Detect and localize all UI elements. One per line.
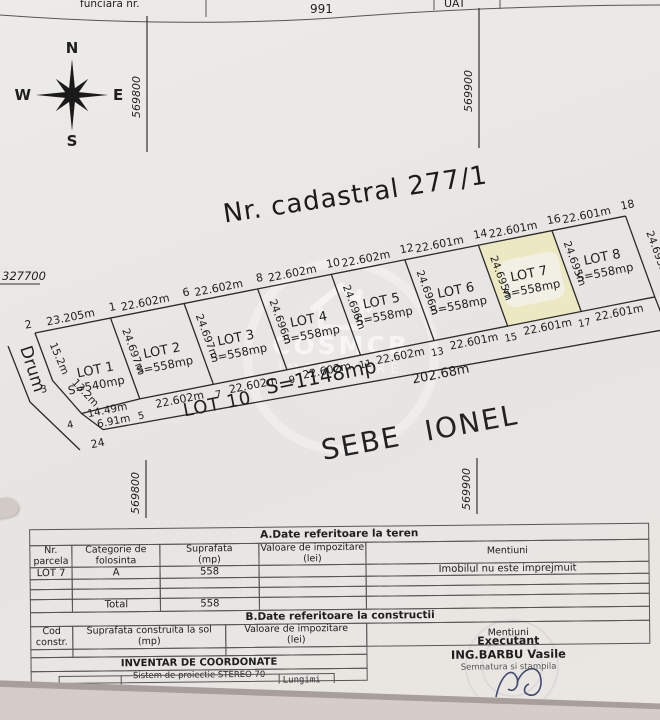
grid-label-569800-top: 569800: [130, 76, 143, 118]
point-18: 18: [619, 197, 635, 212]
dim-top-3: 22.602m: [267, 262, 318, 284]
dim-top-5: 22.601m: [414, 233, 465, 255]
compass-rose: N S W E: [14, 39, 123, 150]
dim-top-0: 23.205m: [45, 306, 96, 328]
point-1: 1: [108, 300, 117, 314]
point-12: 12: [399, 241, 415, 256]
dim-bottom-3: 22.602m: [375, 345, 426, 367]
point-14: 14: [472, 226, 488, 241]
table-a-header-categorie: Categorie de folosinta: [71, 544, 160, 568]
top-fragment-number: 991: [310, 2, 333, 16]
compass-e: E: [113, 86, 123, 104]
compass-s: S: [67, 132, 78, 150]
executant-block: Executant ING.BARBU Vasile Semnatura si …: [366, 633, 650, 674]
coord-table-tick: [279, 674, 280, 684]
executant-title: Executant: [477, 634, 539, 648]
hdr-line: (lei): [303, 554, 322, 565]
table-b-header-valoare: Valoare de impozitare (lei): [225, 623, 367, 648]
point-10: 10: [325, 256, 341, 271]
hdr-line: parcela: [33, 556, 68, 567]
executant-name: ING.BARBU Vasile: [451, 647, 566, 662]
hdr-line: (lei): [287, 635, 306, 646]
dim-bottom-4: 22.601m: [449, 330, 500, 352]
grid-coord-327700: 327700: [2, 269, 46, 283]
executant-subtitle: Semnatura si stampila: [461, 662, 557, 673]
top-fragment-uat: UAT: [444, 0, 466, 10]
point-8: 8: [255, 271, 264, 285]
point-2: 2: [24, 318, 33, 332]
hdr-line: (mp): [138, 637, 161, 648]
hdr-line: constr.: [36, 638, 68, 649]
lungimi-label: Lungimi: [283, 675, 321, 685]
data-tables: A.Date referitoare la teren Nr. parcela …: [29, 523, 651, 699]
scanned-cadastral-document: COSMCB IMOBILIARE funciara nr. 991 UAT 5…: [0, 0, 660, 720]
compass-n: N: [66, 39, 79, 57]
hdr-line: (mp): [198, 555, 221, 566]
point-17: 17: [577, 317, 592, 330]
grid-label-569800-bottom: 569800: [129, 472, 142, 514]
dim-bottom-6: 22.601m: [594, 301, 645, 323]
coord-table-tick: [121, 675, 122, 685]
point-5: 5: [137, 410, 145, 422]
point-4: 4: [66, 419, 74, 431]
table-a-header-suprafata: Suprafata (mp): [159, 543, 259, 567]
road-edge-line: [8, 346, 80, 450]
dim-top-4: 22.602m: [340, 248, 391, 270]
point-6: 6: [181, 285, 190, 299]
point-24: 24: [90, 436, 106, 451]
lot-strip: 23.205m 22.602m 22.602m 22.602m 22.602m …: [23, 193, 660, 459]
dim-top-7: 22.601m: [561, 204, 612, 226]
table-b-header-suprafata: Suprafata construita la sol (mp): [72, 624, 226, 650]
grid-label-569900-top: 569900: [462, 70, 475, 112]
paper-sheet: COSMCB IMOBILIARE funciara nr. 991 UAT 5…: [0, 0, 660, 720]
point-15: 15: [504, 331, 519, 344]
table-a-header-valoare: Valoare de impozitare (lei): [258, 542, 366, 566]
hdr-line: folosinta: [96, 556, 137, 567]
dim-left-0: 15.2m: [47, 341, 71, 377]
top-fragment-text: funciara nr.: [80, 0, 140, 10]
lot10-front-length: 202.68m: [411, 361, 471, 387]
dim-top-2: 22.602m: [193, 277, 244, 299]
coord-table-tick: [334, 673, 335, 683]
table-a-header-parcela: Nr. parcela: [29, 545, 72, 568]
point-13: 13: [430, 346, 445, 359]
compass-w: W: [14, 86, 31, 104]
grid-label-569900-bottom: 569900: [460, 468, 473, 510]
hdr-line: Mentiuni: [487, 546, 528, 557]
dim-top-1: 22.602m: [120, 291, 171, 313]
table-b-header-cod: Cod constr.: [30, 626, 73, 650]
point-16: 16: [546, 212, 562, 227]
lot10-area: S=1148mp: [263, 354, 378, 399]
